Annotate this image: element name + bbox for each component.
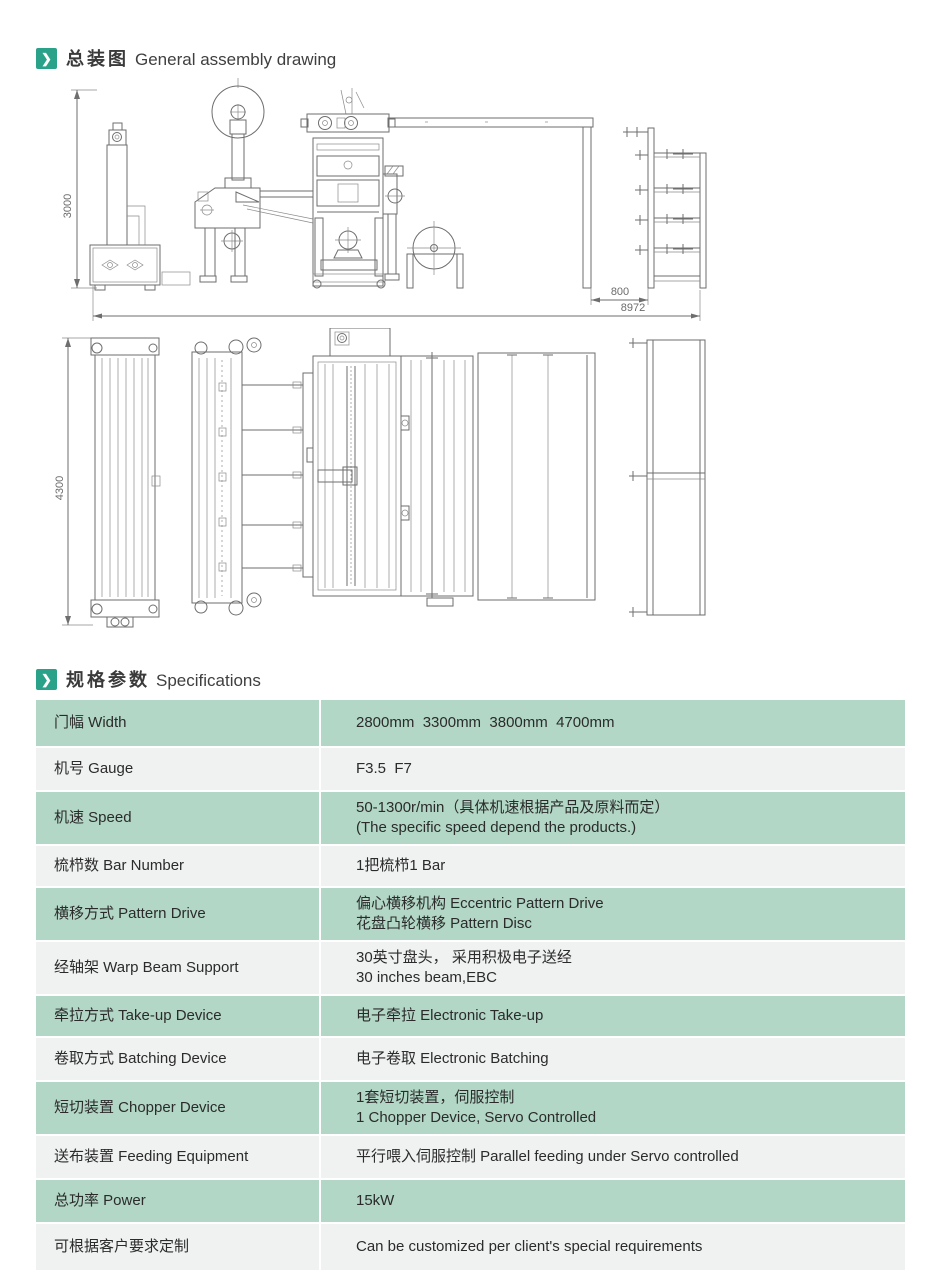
overhead-table-plan [478, 353, 595, 600]
table-row: 卷取方式 Batching Device 电子卷取 Electronic Bat… [36, 1038, 905, 1080]
spec-table: 门幅 Width 2800mm 3300mm 3800mm 4700mm 机号 … [36, 700, 905, 1270]
spec-label: 机号 Gauge [36, 748, 321, 790]
dimension-4300: 4300 [55, 338, 93, 625]
spec-label: 总功率 Power [36, 1180, 321, 1222]
spec-value: 2800mm 3300mm 3800mm 4700mm [321, 700, 905, 746]
table-row: 机号 Gauge F3.5 F7 [36, 748, 905, 790]
spec-value: 1套短切装置，伺服控制 1 Chopper Device, Servo Cont… [321, 1082, 905, 1134]
table-row: 牵拉方式 Take-up Device 电子牵拉 Electronic Take… [36, 996, 905, 1036]
spec-value: F3.5 F7 [321, 748, 905, 790]
spec-value: Can be customized per client's special r… [321, 1224, 905, 1270]
spec-value: 平行喂入伺服控制 Parallel feeding under Servo co… [321, 1136, 905, 1178]
spec-value: 15kW [321, 1180, 905, 1222]
table-row: 可根据客户要求定制 Can be customized per client's… [36, 1224, 905, 1270]
specs-title-zh: 规格参数 [66, 666, 150, 692]
spec-label: 送布装置 Feeding Equipment [36, 1136, 321, 1178]
assembly-drawing-plan: 4300 [55, 328, 715, 638]
table-row: 梳栉数 Bar Number 1把梳栉1 Bar [36, 846, 905, 886]
assembly-section-title: 总装图 General assembly drawing [66, 45, 336, 71]
spec-value: 30英寸盘头， 采用积极电子送经 30 inches beam,EBC [321, 942, 905, 994]
spec-label: 门幅 Width [36, 700, 321, 746]
assembly-title-en: General assembly drawing [135, 50, 336, 70]
table-row: 经轴架 Warp Beam Support 30英寸盘头， 采用积极电子送经 3… [36, 942, 905, 994]
machine-comb-plan [192, 338, 313, 615]
machine-main-plan [307, 328, 409, 596]
spec-label: 卷取方式 Batching Device [36, 1038, 321, 1080]
spec-value: 偏心横移机构 Eccentric Pattern Drive 花盘凸轮横移 Pa… [321, 888, 905, 940]
table-row: 横移方式 Pattern Drive 偏心横移机构 Eccentric Patt… [36, 888, 905, 940]
table-row: 门幅 Width 2800mm 3300mm 3800mm 4700mm [36, 700, 905, 746]
spec-label: 梳栉数 Bar Number [36, 846, 321, 886]
table-row: 送布装置 Feeding Equipment 平行喂入伺服控制 Parallel… [36, 1136, 905, 1178]
spec-label: 横移方式 Pattern Drive [36, 888, 321, 940]
machine-feeder-plan [91, 338, 160, 627]
machine-takeup-plan [401, 352, 473, 606]
spec-value: 电子卷取 Electronic Batching [321, 1038, 905, 1080]
spec-label: 牵拉方式 Take-up Device [36, 996, 321, 1036]
specs-section-title: 规格参数 Specifications [66, 666, 261, 692]
dimension-8972: 8972 [93, 286, 700, 321]
dim-800-label: 800 [611, 286, 629, 298]
table-row: 总功率 Power 15kW [36, 1180, 905, 1222]
spec-label: 可根据客户要求定制 [36, 1224, 321, 1270]
table-row: 机速 Speed 50-1300r/min（具体机速根据产品及原料而定） (Th… [36, 792, 905, 844]
spec-label: 经轴架 Warp Beam Support [36, 942, 321, 994]
spec-value: 1把梳栉1 Bar [321, 846, 905, 886]
creel-plan [629, 338, 705, 617]
spec-value: 电子牵拉 Electronic Take-up [321, 996, 905, 1036]
spec-value: 50-1300r/min（具体机速根据产品及原料而定） (The specifi… [321, 792, 905, 844]
dimension-3000: 3000 [62, 90, 97, 288]
assembly-title-zh: 总装图 [66, 45, 129, 71]
assembly-section-header: ❯ 总装图 General assembly drawing [36, 45, 336, 71]
machine-disc-elevation [195, 78, 313, 282]
chevron-right-icon: ❯ [36, 48, 57, 69]
assembly-drawing-elevation: 3000 [55, 78, 715, 328]
dim-8972-label: 8972 [621, 302, 645, 314]
spec-label: 机速 Speed [36, 792, 321, 844]
specs-title-en: Specifications [156, 671, 261, 691]
cloth-roll-elevation [407, 221, 463, 288]
dim-4300-label: 4300 [55, 476, 66, 500]
dim-3000-label: 3000 [62, 194, 74, 218]
chevron-right-icon: ❯ [36, 669, 57, 690]
machine-feeder-elevation [90, 123, 190, 290]
table-row: 短切装置 Chopper Device 1套短切装置，伺服控制 1 Choppe… [36, 1082, 905, 1134]
spec-label: 短切装置 Chopper Device [36, 1082, 321, 1134]
creel-elevation [623, 127, 706, 288]
specs-section-header: ❯ 规格参数 Specifications [36, 666, 261, 692]
